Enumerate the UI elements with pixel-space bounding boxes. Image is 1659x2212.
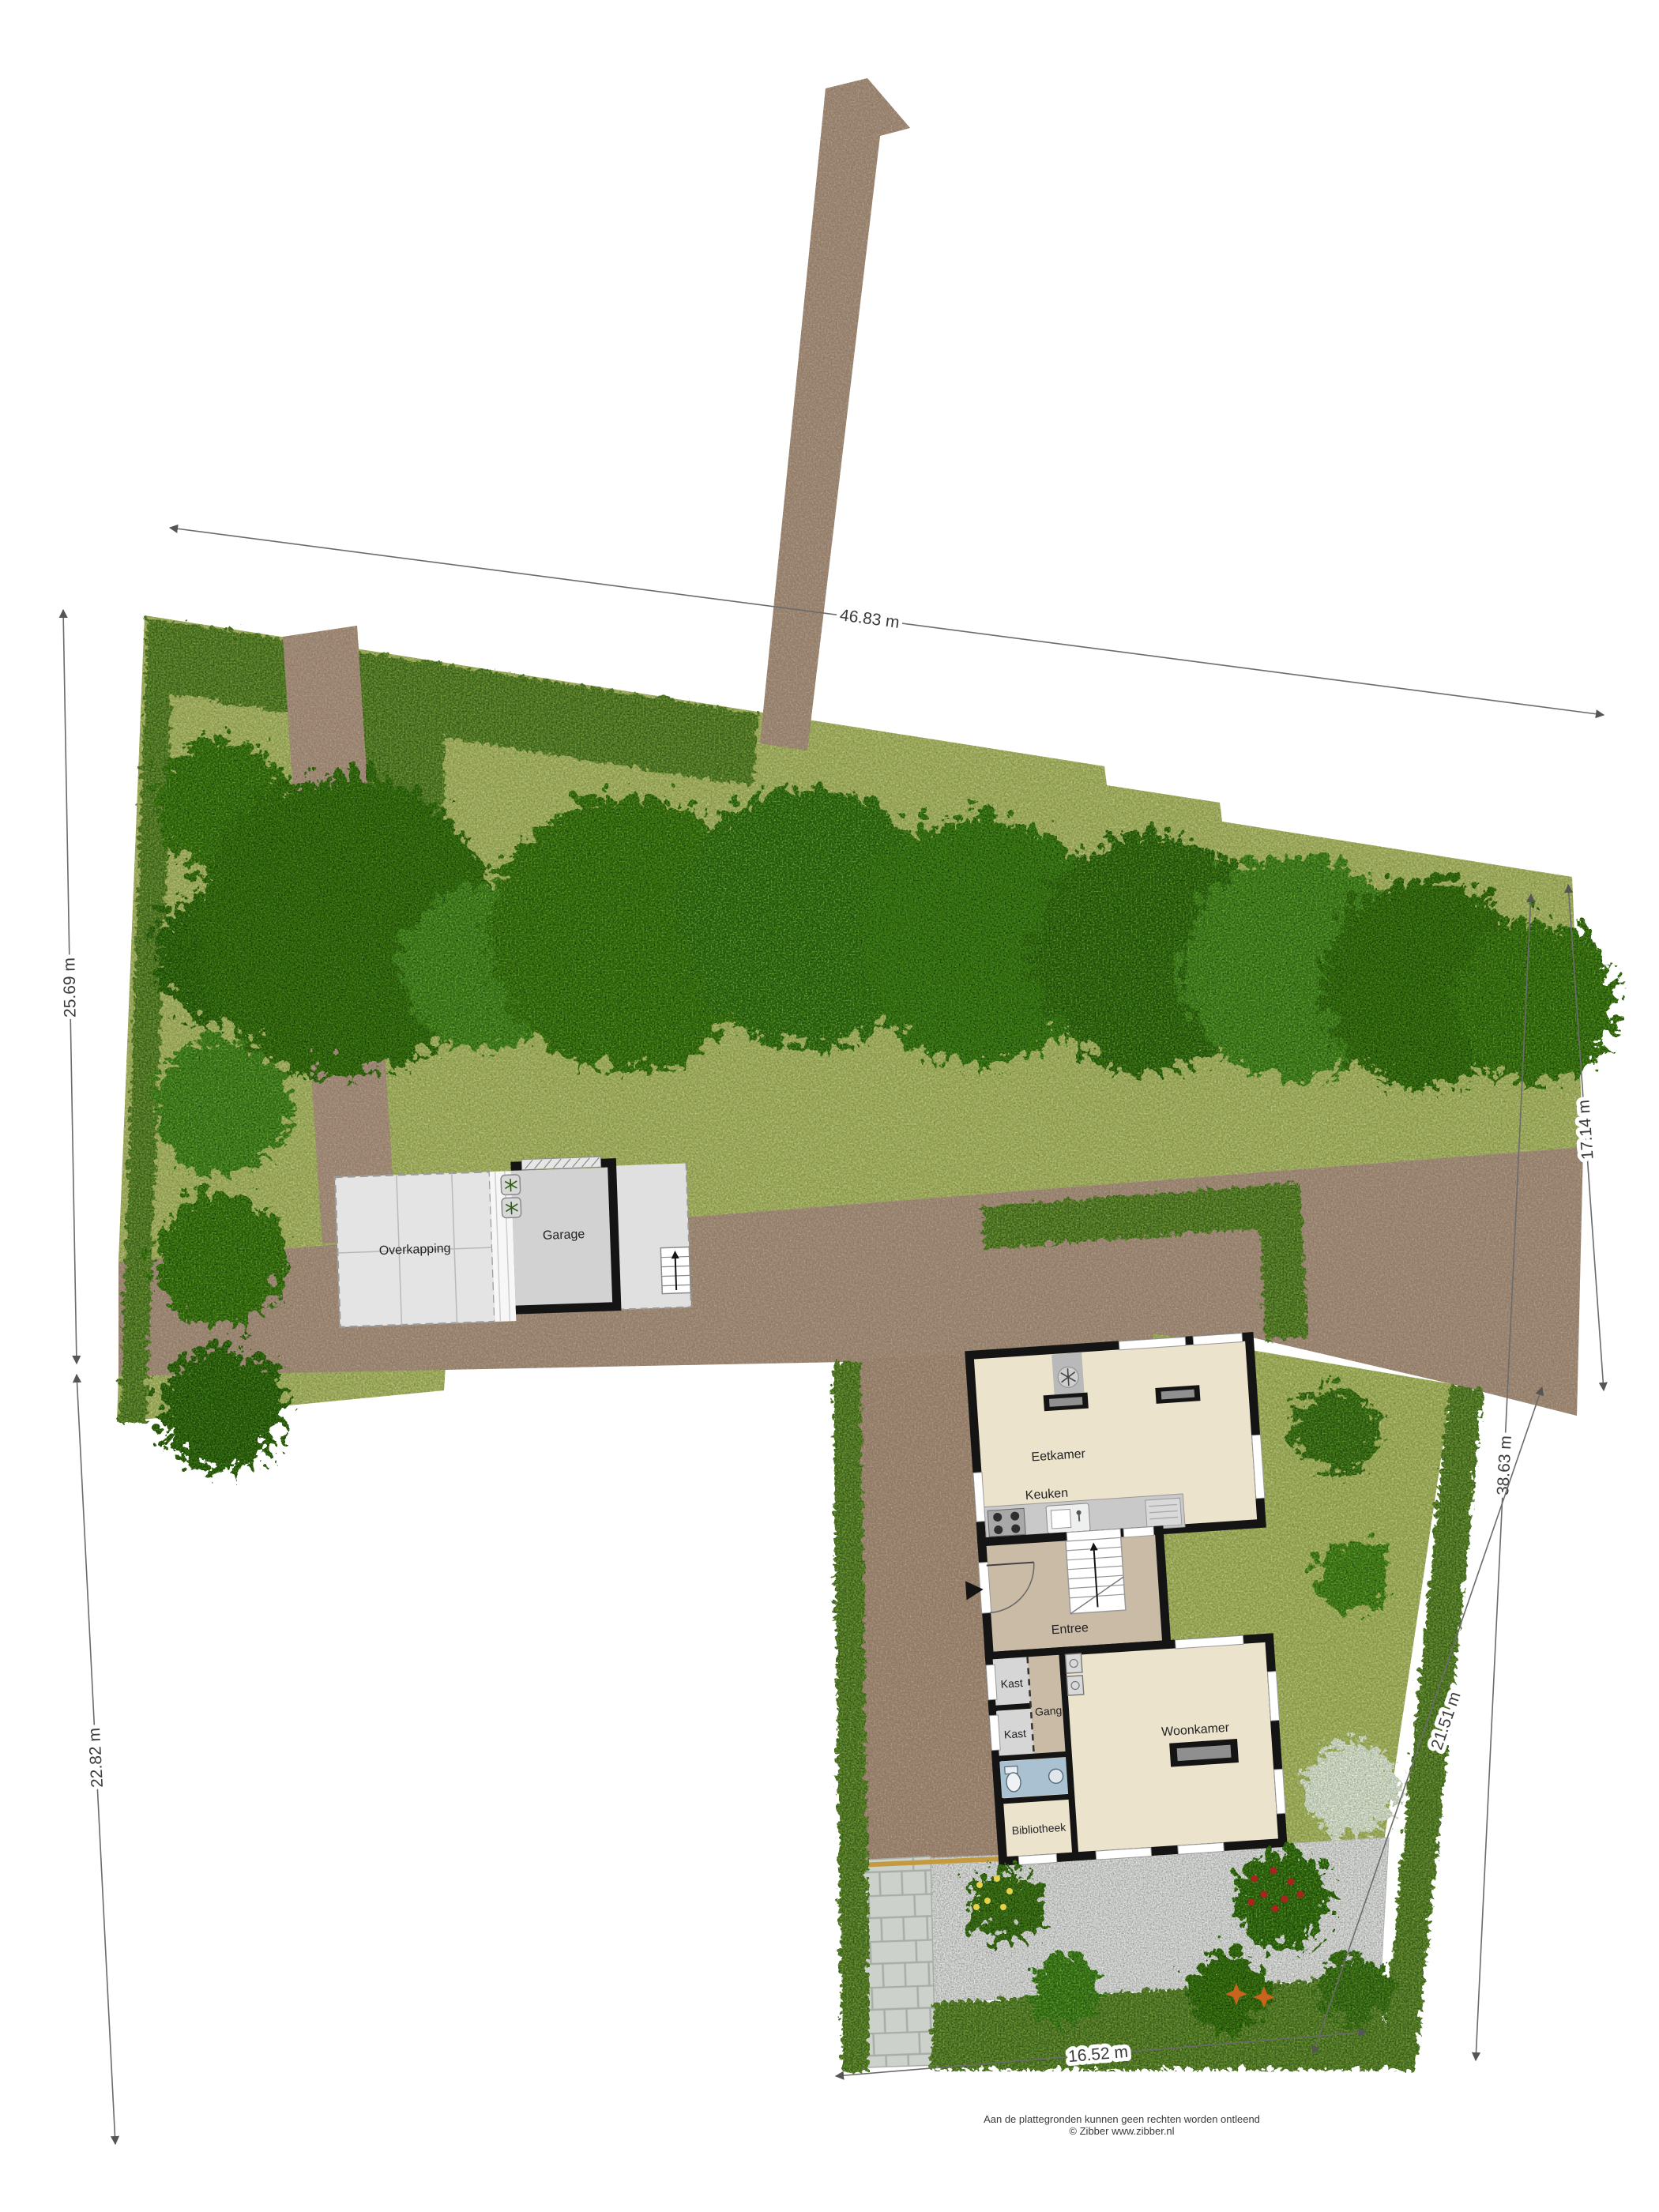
bush bbox=[1310, 1943, 1382, 2016]
hedge-band-vertical bbox=[1256, 1180, 1305, 1338]
staircase bbox=[1066, 1537, 1126, 1613]
kast2-label: Kast bbox=[1003, 1727, 1026, 1741]
door-gap-kitchen bbox=[1123, 1526, 1154, 1537]
radiator bbox=[1155, 1385, 1200, 1404]
dim-label-right-long: 38.63 m bbox=[1494, 1435, 1515, 1496]
tree bbox=[144, 1183, 276, 1316]
fireplace bbox=[1169, 1739, 1239, 1767]
flower-bed-red bbox=[1224, 1842, 1322, 1940]
tree bbox=[149, 1335, 275, 1461]
carport-label: Overkapping bbox=[379, 1242, 451, 1258]
site-plan-page: Overkapping Garage bbox=[0, 0, 1659, 2212]
tree bbox=[145, 1032, 281, 1168]
radiator bbox=[1044, 1393, 1089, 1412]
plant-pot bbox=[501, 1175, 521, 1195]
footer-copyright: © Zibber www.zibber.nl bbox=[1069, 2125, 1174, 2137]
garage-door-hatch bbox=[521, 1157, 600, 1169]
dim-label-right-outer: 17.14 m bbox=[1574, 1099, 1597, 1160]
bush bbox=[1308, 1533, 1381, 1605]
outdoor-stairs bbox=[660, 1247, 690, 1293]
stove-icon bbox=[987, 1508, 1025, 1537]
footer: Aan de plattegronden kunnen geen rechten… bbox=[984, 2113, 1260, 2137]
dim-label-left-lower: 22.82 m bbox=[85, 1727, 107, 1788]
sink-icon bbox=[1046, 1503, 1090, 1534]
garage-label: Garage bbox=[543, 1228, 585, 1243]
dish-rack-icon bbox=[1145, 1498, 1182, 1527]
plant-pot bbox=[502, 1198, 521, 1218]
gang-label: Gang bbox=[1034, 1704, 1062, 1718]
flower-bed-yellow bbox=[956, 1856, 1032, 1932]
sink-icon bbox=[1048, 1769, 1063, 1784]
keuken-label: Keuken bbox=[1025, 1487, 1068, 1503]
garage-block: Overkapping Garage bbox=[334, 1153, 691, 1326]
shrub-light bbox=[1295, 1733, 1390, 1828]
entree-label: Entree bbox=[1051, 1621, 1089, 1637]
dim-label-left-upper: 25.69 m bbox=[60, 957, 79, 1018]
bush bbox=[1177, 1942, 1259, 2024]
footer-disclaimer: Aan de plattegronden kunnen geen rechten… bbox=[984, 2113, 1260, 2125]
street-strip bbox=[760, 78, 910, 750]
kast1-label: Kast bbox=[1000, 1676, 1023, 1691]
site-plan-canvas: Overkapping Garage bbox=[0, 0, 1659, 2212]
bush bbox=[1283, 1379, 1368, 1465]
dim-label-top: 46.83 m bbox=[839, 606, 901, 632]
bush bbox=[1021, 1945, 1093, 2018]
